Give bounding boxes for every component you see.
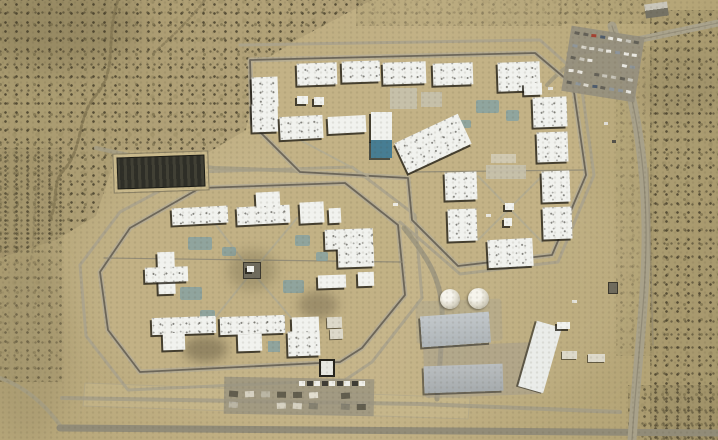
rec-court: [476, 100, 499, 113]
parked-vehicle: [577, 70, 582, 74]
parked-vehicle: [611, 75, 616, 79]
upper-concrete-pad-a: [390, 88, 417, 109]
parked-vehicle: [609, 88, 614, 92]
parked-vehicle: [309, 403, 318, 409]
lower-housing-south-b: [220, 315, 286, 335]
parked-vehicle: [583, 84, 588, 88]
upper-housing-north-a: [297, 62, 338, 85]
lower-bldg-mid-a: [318, 275, 346, 289]
bus-row: [344, 381, 350, 386]
parked-vehicle: [623, 52, 628, 55]
parked-vehicle: [575, 82, 580, 86]
lower-bldg-east-b: [338, 246, 375, 267]
lower-housing-south-c2: [288, 330, 321, 356]
bus-row: [352, 381, 358, 386]
rec-court: [283, 280, 304, 293]
vehicle: [486, 214, 491, 217]
parked-vehicle: [566, 81, 571, 85]
water-tank-west: [440, 289, 460, 309]
upper-concrete-pad-d: [491, 154, 516, 163]
rec-court: [316, 252, 328, 261]
rec-court: [506, 110, 519, 121]
bus-row: [314, 381, 320, 386]
upper-housing-east-a: [532, 96, 567, 127]
bus-row: [337, 381, 343, 386]
satellite-view-prison-complex: [0, 0, 718, 440]
parked-vehicle: [357, 404, 366, 410]
parked-vehicle: [606, 49, 611, 52]
upper-housing-east-c: [541, 171, 570, 203]
parked-vehicle: [569, 69, 574, 72]
rec-court: [295, 235, 310, 246]
upper-housing-south-b: [447, 209, 477, 242]
vehicle: [548, 87, 553, 90]
bus-row: [329, 381, 335, 386]
parked-vehicle: [592, 85, 597, 88]
lower-bldg-mid-b: [358, 272, 374, 287]
lower-teal-structure: [268, 341, 280, 352]
parked-vehicle: [277, 392, 286, 398]
parked-vehicle: [245, 391, 254, 397]
bus-row: [359, 381, 365, 386]
upper-admin-annex: [524, 83, 542, 96]
upper-yard-shed-b: [314, 97, 324, 105]
upper-yard-shed-c: [505, 203, 514, 210]
road-bottom: [60, 428, 718, 433]
parked-vehicle: [602, 74, 607, 77]
parked-vehicle: [581, 45, 586, 49]
sally-port-gatehouse: [319, 359, 335, 377]
parked-vehicle: [615, 50, 620, 53]
upper-bldg-blue-roof: [371, 140, 392, 158]
upper-housing-north-c: [383, 61, 427, 84]
parked-vehicle: [277, 402, 286, 408]
parked-vehicle: [574, 31, 579, 35]
upper-housing-mid-a: [279, 115, 323, 140]
parked-vehicle: [261, 391, 270, 397]
upper-housing-east-b: [536, 131, 568, 162]
parked-vehicle: [617, 89, 622, 93]
yard-center-tower-roof: [247, 266, 254, 272]
upper-concrete-pad-b: [421, 92, 442, 107]
parked-vehicle: [600, 86, 605, 90]
truck-on-road: [608, 282, 618, 294]
bus-row: [322, 381, 328, 386]
parked-vehicle: [293, 403, 302, 410]
lower-housing-north-a: [172, 206, 229, 226]
lower-housing-south-a-stem: [163, 333, 186, 351]
parked-vehicle: [619, 77, 624, 81]
upper-housing-west-b: [252, 104, 279, 133]
parked-vehicle: [591, 34, 596, 37]
upper-housing-north-b: [342, 60, 381, 82]
lower-housing-north-c: [299, 201, 324, 223]
lower-gray-shed-a: [327, 317, 342, 329]
bus-row: [307, 381, 313, 386]
upper-housing-north-d: [433, 62, 474, 85]
vehicle: [604, 122, 608, 125]
parked-vehicle: [309, 392, 318, 398]
lower-gray-shed-b: [330, 329, 343, 339]
upper-housing-mid-b: [328, 115, 367, 134]
parked-vehicle: [570, 56, 575, 60]
trailer-a: [557, 322, 570, 329]
arroyo-wash-1: [50, 0, 118, 218]
lower-cross-unit-hwing: [145, 266, 188, 282]
retention-pond: [113, 151, 208, 192]
lower-housing-north-c2: [329, 208, 342, 224]
staff-parking-northeast: [561, 26, 644, 103]
parked-vehicle: [572, 44, 577, 48]
rec-court: [180, 287, 202, 300]
bus-row: [299, 381, 305, 386]
rec-court: [222, 247, 236, 256]
rec-court: [188, 237, 212, 250]
parked-vehicle: [594, 73, 599, 76]
water-tank-east: [468, 288, 489, 309]
parked-vehicle: [587, 59, 592, 62]
trailer-c: [588, 354, 605, 362]
upper-housing-south-a: [445, 171, 478, 200]
lower-housing-north-b: [237, 205, 291, 226]
parked-vehicle: [634, 41, 639, 45]
parked-vehicle: [625, 39, 630, 43]
parked-vehicle: [229, 390, 238, 397]
parked-vehicle: [621, 64, 626, 68]
arroyo-wash-3: [28, 180, 40, 270]
parked-vehicle: [598, 48, 603, 52]
upper-yard-shed-d: [504, 218, 512, 226]
parked-vehicle: [341, 393, 350, 400]
trailer-b: [562, 351, 577, 359]
vehicle: [393, 203, 398, 206]
parked-vehicle: [628, 78, 633, 82]
upper-housing-east-d: [542, 207, 572, 240]
parked-vehicle: [579, 57, 584, 61]
upper-housing-south-c: [487, 238, 533, 268]
parked-vehicle: [589, 46, 594, 49]
upper-bldg-bluewhite: [371, 112, 392, 141]
warehouse-south: [424, 364, 504, 394]
parked-vehicle: [632, 53, 637, 56]
road-bottomleft-corner: [0, 378, 62, 428]
parked-vehicle: [583, 32, 588, 36]
parked-vehicle: [229, 402, 238, 409]
parked-vehicle: [341, 404, 350, 411]
warehouse-north: [420, 312, 491, 348]
parked-vehicle: [617, 38, 622, 42]
lower-housing-south-b-stem: [238, 334, 263, 352]
vehicle: [572, 300, 577, 303]
parked-vehicle: [626, 90, 631, 94]
upper-concrete-pad-c: [486, 165, 526, 179]
parked-vehicle: [600, 35, 605, 38]
upper-yard-shed-a: [297, 96, 308, 104]
parked-vehicle: [630, 65, 635, 69]
parked-vehicle: [608, 36, 613, 40]
arroyo-wash-2: [152, 0, 205, 55]
vehicle: [612, 140, 616, 143]
parked-vehicle: [293, 392, 302, 398]
